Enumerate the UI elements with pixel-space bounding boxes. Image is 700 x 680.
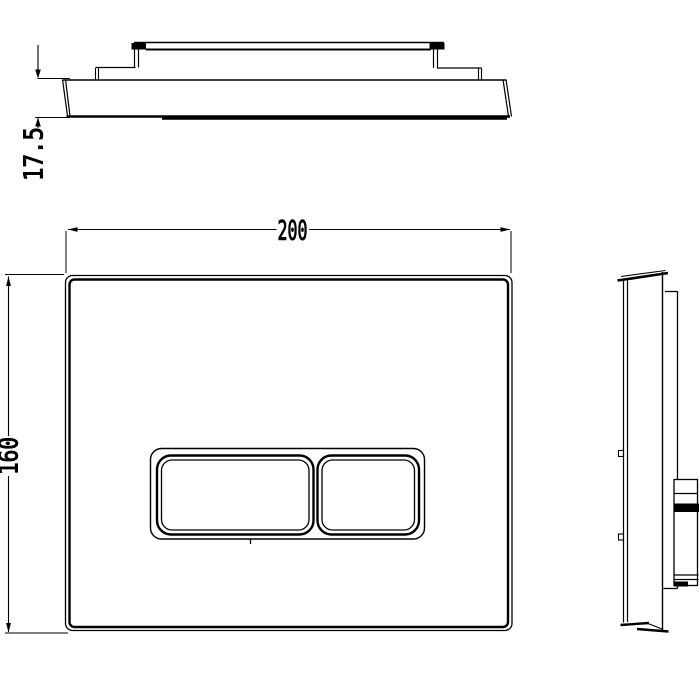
latch-band xyxy=(674,504,699,513)
technical-drawing-page: 17.5 200 160 xyxy=(0,0,700,680)
drawing-background xyxy=(0,0,700,680)
width-dim-label: 200 xyxy=(278,216,308,247)
latch-foot xyxy=(674,582,688,587)
height-dim-label: 160 xyxy=(0,437,25,475)
thickness-dim-label: 17.5 xyxy=(20,127,50,181)
top-view-housing-left-cap xyxy=(132,43,147,50)
flush-plate-drawing: 17.5 200 160 xyxy=(0,0,700,680)
